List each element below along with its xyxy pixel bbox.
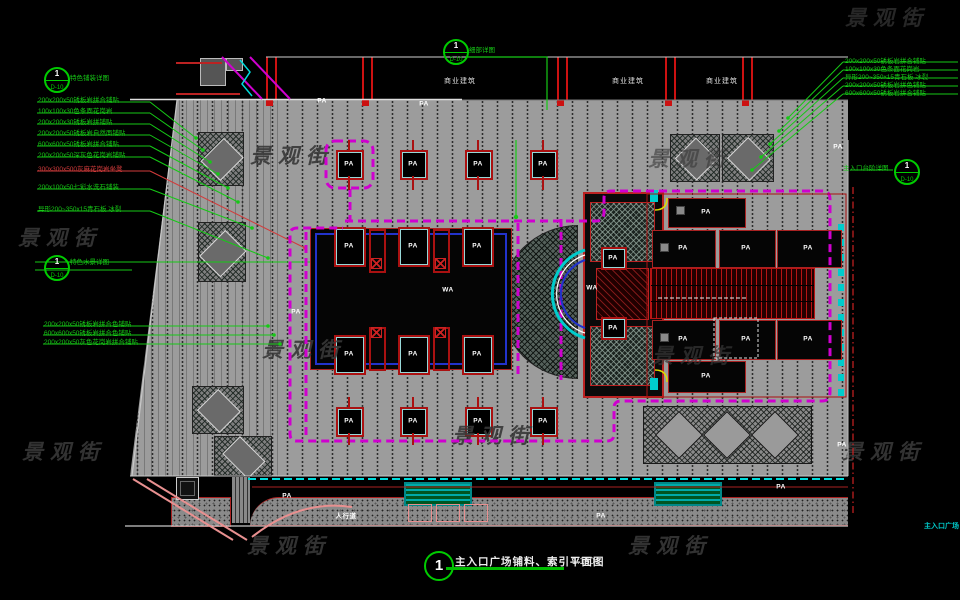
- paving-diamond: [703, 411, 751, 459]
- sidewalk-label: 人行道: [336, 510, 357, 520]
- column-base: [371, 258, 382, 269]
- material-label: 100x100x30色条面花岗岩: [38, 105, 112, 115]
- area-code: PA: [291, 309, 301, 316]
- area-code: PA: [608, 325, 618, 332]
- detail-divider: [894, 172, 920, 173]
- corner-caption: 主入口广场: [924, 521, 959, 531]
- building-column-mark: [557, 57, 568, 100]
- building-column-mark: [362, 57, 373, 100]
- material-label: 200x200x50灰色花岗岩拼合铺贴: [44, 336, 138, 346]
- detail-marker: 1 D-10: [894, 159, 920, 185]
- area-code: PA: [538, 418, 548, 425]
- building-label: 商业建筑: [706, 76, 738, 86]
- watermark: 景观街: [247, 530, 331, 560]
- drawing-scale: 1:150: [572, 556, 595, 566]
- paving-medallion: [214, 436, 272, 476]
- paving-medallion: [198, 222, 246, 282]
- watermark: 景观街: [652, 340, 736, 370]
- detail-label: 特色水景详图: [70, 256, 109, 266]
- grand-stairs: [650, 268, 815, 319]
- area-code: PA: [344, 161, 354, 168]
- area-code: PA: [408, 351, 418, 358]
- watermark: 景观街: [845, 2, 929, 32]
- bench: [404, 482, 472, 506]
- water-area-code: WA: [586, 285, 597, 292]
- tree-planter: [176, 477, 199, 500]
- area-code: PA: [317, 98, 327, 105]
- material-label: 300x300x500灰麻花岗岩坐凳: [38, 163, 123, 173]
- area-code: PA: [837, 442, 847, 449]
- detail-number: 1: [46, 257, 68, 266]
- detail-number: 1: [445, 41, 467, 50]
- area-code: PA: [803, 245, 813, 252]
- area-code: PA: [678, 336, 688, 343]
- material-label: 200x100x50七彩水洗石铺装: [38, 181, 119, 191]
- watermark: 景观街: [262, 334, 346, 364]
- outdoor-furniture: [408, 504, 432, 522]
- area-code: PA: [776, 484, 786, 491]
- column-base: [435, 258, 446, 269]
- area-code: PA: [741, 336, 751, 343]
- area-code: PA: [678, 245, 688, 252]
- area-code: PA: [473, 161, 483, 168]
- tree-planter-inner: [180, 481, 195, 496]
- detail-sheet: D-10: [46, 85, 68, 91]
- area-code: PA: [408, 418, 418, 425]
- area-code: PA: [344, 351, 354, 358]
- watermark: 景观街: [842, 436, 926, 466]
- watermark: 景观街: [452, 420, 536, 450]
- material-label: 200x200x30锈板岩拼铺贴: [38, 116, 112, 126]
- detail-number: 1: [896, 161, 918, 170]
- area-code: PA: [803, 336, 813, 343]
- area-code: PA: [596, 513, 606, 520]
- stair-landing-line: [651, 285, 814, 286]
- watermark: 景观街: [250, 140, 334, 170]
- material-label: 200x200x50深灰色花岗岩铺贴: [38, 149, 125, 159]
- area-code: PA: [472, 351, 482, 358]
- area-code: PA: [472, 243, 482, 250]
- area-code: PA: [282, 493, 292, 500]
- watermark: 景观街: [22, 436, 106, 466]
- detail-sheet: D-10: [46, 273, 68, 279]
- title-underline: [446, 567, 564, 570]
- column-base: [435, 327, 446, 338]
- detail-marker: 1 D-10: [44, 67, 70, 93]
- area-code: PA: [344, 418, 354, 425]
- gravel-patch: [171, 497, 231, 527]
- area-code: PA: [833, 144, 843, 151]
- detail-label: 特色铺装详图: [70, 72, 109, 82]
- outdoor-furniture: [436, 504, 460, 522]
- material-label: 200x200x50锈板岩自然面铺贴: [38, 127, 125, 137]
- utility-box: [226, 58, 243, 71]
- entry-carpet-paving: [596, 268, 649, 320]
- paving-medallion: [198, 132, 244, 186]
- area-code: PA: [701, 373, 711, 380]
- building-column-mark: [742, 57, 753, 100]
- detail-sheet: D-10: [445, 57, 467, 63]
- area-code: PA: [538, 161, 548, 168]
- watermark: 景观街: [628, 530, 712, 560]
- door-block: [650, 190, 658, 202]
- outdoor-furniture: [464, 504, 488, 522]
- light-fixture: [676, 206, 685, 215]
- paving-diamond: [751, 411, 799, 459]
- detail-divider: [44, 80, 70, 81]
- building-column-mark: [665, 57, 676, 100]
- door-block: [650, 378, 658, 390]
- watermark: 景观街: [648, 143, 732, 173]
- cad-drawing-canvas: 景观街 景观街 景观街 景观街 景观街 景观街 景观街 景观街 景观街 景观街 …: [0, 0, 960, 600]
- stair-landing-line: [651, 301, 814, 302]
- column-base: [371, 327, 382, 338]
- bench: [654, 482, 722, 506]
- area-code: PA: [608, 255, 618, 262]
- detail-number: 1: [46, 69, 68, 78]
- ornate-paving-band: [643, 406, 812, 464]
- area-code: PA: [741, 245, 751, 252]
- area-code: PA: [408, 243, 418, 250]
- detail-divider: [443, 52, 469, 53]
- detail-label: 主入口台阶详图: [843, 162, 889, 172]
- utility-box: [200, 58, 226, 86]
- water-area-code: WA: [442, 287, 453, 294]
- area-code: PA: [344, 243, 354, 250]
- area-code: PA: [701, 209, 711, 216]
- detail-marker: 1 D-10: [44, 255, 70, 281]
- detail-divider: [44, 268, 70, 269]
- detail-label: 细部详图: [469, 44, 495, 54]
- material-label: 600x600x50锈板岩拼合铺贴: [38, 138, 119, 148]
- area-code: PA: [408, 161, 418, 168]
- area-code: PA: [473, 418, 483, 425]
- material-label: 异形200~350x15青石板 冰裂: [38, 203, 121, 213]
- drawing-number-circle: 1: [424, 551, 454, 581]
- building-label: 商业建筑: [612, 76, 644, 86]
- paving-diamond: [655, 411, 703, 459]
- detail-sheet: D-10: [896, 177, 918, 183]
- paving-strip: [232, 477, 250, 523]
- watermark: 景观街: [18, 222, 102, 252]
- detail-marker: 1 D-10: [443, 39, 469, 65]
- paving-medallion: [192, 386, 244, 434]
- material-label: 200x200x50锈板岩拼合铺贴: [38, 94, 119, 104]
- light-fixture: [660, 243, 669, 252]
- material-label: 600x600x50锈板岩拼合铺贴: [845, 87, 926, 97]
- building-label: 商业建筑: [444, 76, 476, 86]
- building-column-mark: [266, 57, 277, 100]
- area-code: PA: [419, 101, 429, 108]
